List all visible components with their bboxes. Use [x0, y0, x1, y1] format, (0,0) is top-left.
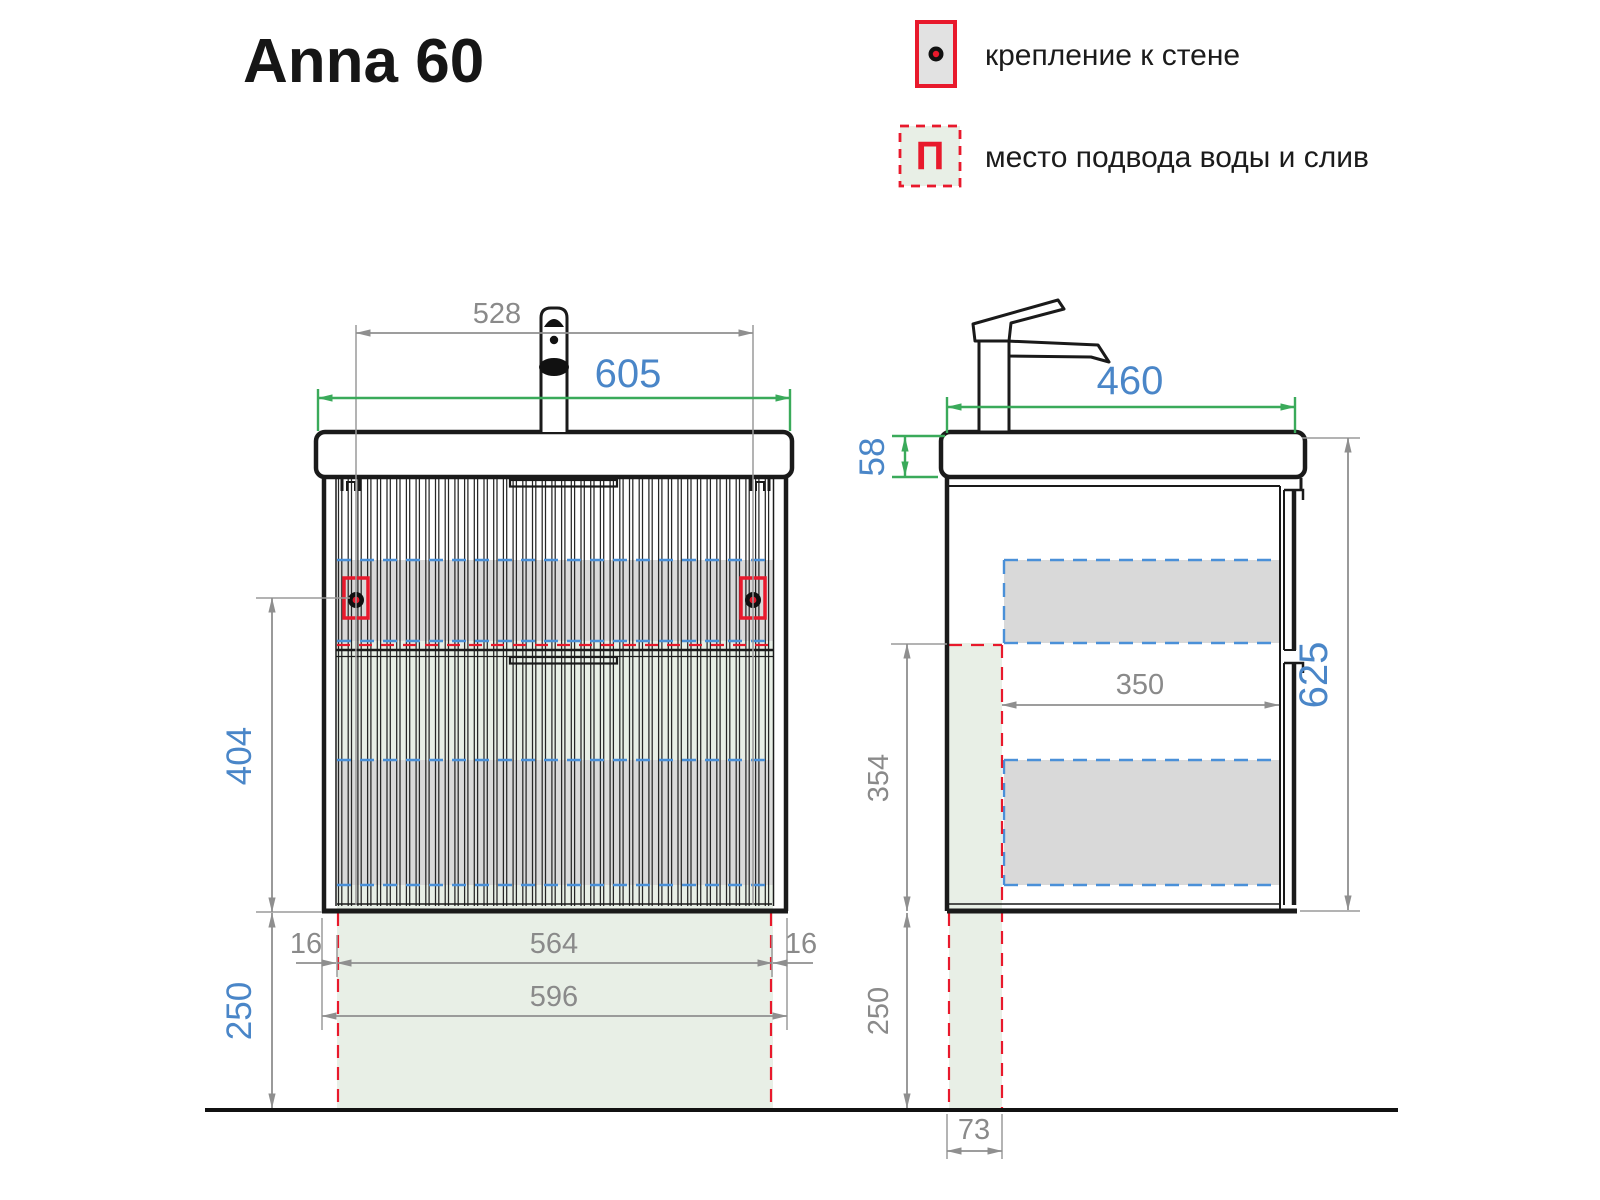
supply-symbol: П	[916, 134, 945, 178]
dim-front-floor-gap: 250	[220, 982, 259, 1040]
legend-water-supply-label: место подвода воды и слив	[985, 141, 1369, 174]
legend-wall-mount-label: крепление к стене	[985, 39, 1240, 72]
dim-front-mount-height: 404	[220, 727, 259, 785]
dim-side-total-height: 625	[1292, 642, 1336, 709]
dim-front-inner-width: 564	[530, 928, 578, 960]
supply-zone-side	[949, 643, 1002, 1108]
dim-front-mount-span: 528	[473, 298, 521, 330]
dim-side-depth: 460	[1097, 359, 1164, 403]
water-supply-icon: П	[900, 126, 960, 186]
dim-side-zone-depth: 73	[958, 1114, 990, 1146]
dim-front-gap-left: 16	[290, 928, 322, 960]
technical-drawing-page: Anna 60 крепление к стене П место подвод…	[0, 0, 1600, 1200]
basin-side	[941, 432, 1305, 477]
dim-side-floor-gap: 250	[863, 987, 895, 1035]
dim-front-total-width: 605	[595, 352, 662, 396]
dim-side-inner-depth: 350	[1116, 669, 1164, 701]
faucet-side	[973, 300, 1109, 432]
dim-side-basin-height: 58	[853, 438, 892, 477]
page-title: Anna 60	[243, 27, 484, 96]
legend: крепление к стене П место подвода воды и…	[900, 22, 1369, 186]
mount-zone-upper-side	[1004, 560, 1280, 643]
dim-front-body-width: 596	[530, 981, 578, 1013]
dim-front-gap-right: 16	[785, 928, 817, 960]
faucet-front	[539, 308, 569, 432]
dim-side-zone-height: 354	[863, 754, 895, 802]
drawing-canvas: Anna 60 крепление к стене П место подвод…	[0, 0, 1600, 1200]
side-view: 460 58 625 350 354 250 73	[853, 300, 1360, 1159]
basin-front	[316, 432, 792, 477]
front-view: 528 605 404 250 16 564 16 596	[220, 298, 817, 1110]
mount-zone-lower-side	[1004, 760, 1280, 885]
wall-mount-icon	[917, 22, 955, 86]
